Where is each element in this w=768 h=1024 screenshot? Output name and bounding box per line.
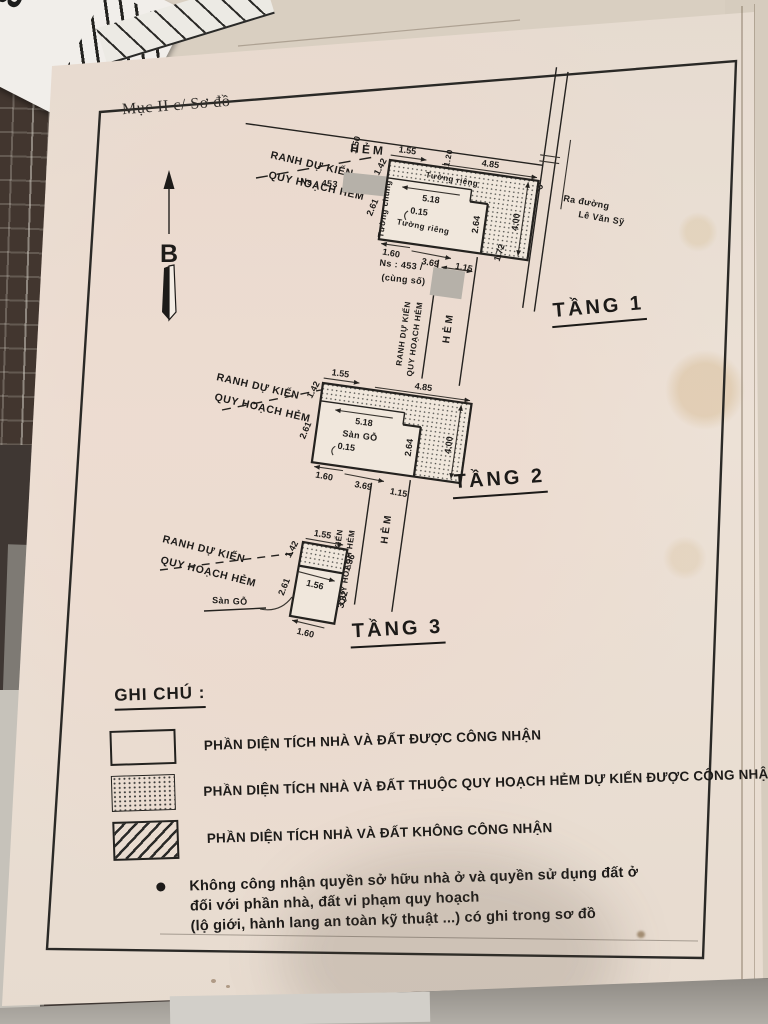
- f2-dim-485: 4.85: [414, 381, 433, 393]
- paper-under-bottom: [170, 992, 430, 1024]
- f2-alley-below-line-1: [354, 483, 371, 605]
- floor3-plan: RANH DỰ KIẾN QUY HOẠCH HẺM Sàn GỖ 1.55 1…: [159, 523, 360, 645]
- floor3-title: TẦNG 3: [349, 616, 446, 649]
- legend-title: GHI CHÚ :: [114, 683, 206, 711]
- floor1-plan: RANH DỰ KIẾN QUY HOẠCH HẺM 1.50 HẺM Ns :…: [214, 26, 626, 397]
- f2-dim-261: 2.61: [297, 420, 313, 440]
- f2-dim-369: 3.69: [354, 479, 373, 492]
- f3-dim-142: 1.42: [283, 539, 300, 559]
- f2-alley-below-line-2: [392, 480, 411, 612]
- f1-dim-142: 1.42: [372, 157, 389, 177]
- legend-label: PHẦN DIỆN TÍCH NHÀ VÀ ĐẤT KHÔNG CÔNG NHẬ…: [207, 820, 553, 846]
- f1-house-number-2b: (cùng số): [381, 272, 426, 287]
- f3-dim-160: 1.60: [296, 626, 315, 640]
- f2-dim-115: 1.15: [389, 486, 408, 499]
- f1-redaction-box-2: [430, 267, 466, 299]
- f3-dim-155: 1.55: [313, 528, 332, 541]
- f1-alley-label-below: HẺM: [439, 311, 456, 344]
- legend-swatch-dotted: [111, 774, 176, 812]
- f1-dim-155: 1.55: [398, 144, 417, 156]
- behind-paper-edge-line: [238, 20, 520, 46]
- f1-street-label-1: Ra đường: [563, 193, 611, 211]
- f3-dim-261: 2.61: [276, 577, 292, 597]
- legend-row-recognized: PHẦN DIỆN TÍCH NHÀ VÀ ĐẤT ĐƯỢC CÔNG NHẬN: [109, 711, 750, 766]
- legend-row-planned-alley: PHẦN DIỆN TÍCH NHÀ VÀ ĐẤT THUỘC QUY HOẠC…: [111, 756, 752, 812]
- legend-swatch-hatched: [112, 820, 179, 861]
- photo-of-survey-document: 453 B: [0, 0, 768, 1024]
- f1-house-number-2a: Ns : 453 /: [379, 258, 423, 273]
- f1-dim-369: 3.69: [421, 256, 440, 269]
- f2-dim-155: 1.55: [331, 367, 350, 379]
- f2-alley-label-below: HẺM: [377, 512, 394, 545]
- f1-dim-261: 2.61: [364, 197, 380, 217]
- f1-street-label-2: Lê Văn Sỹ: [578, 209, 626, 227]
- f3-wood-floor-label: Sàn GỖ: [212, 594, 248, 607]
- f2-dim-160: 1.60: [315, 469, 334, 482]
- f1-dim-485: 4.85: [481, 158, 500, 170]
- legend-label: PHẦN DIỆN TÍCH NHÀ VÀ ĐẤT THUỘC QUY HOẠC…: [203, 765, 768, 798]
- north-arrow: B: [160, 170, 178, 320]
- legend-swatch-plain: [109, 729, 176, 766]
- north-label: B: [160, 240, 178, 268]
- legend-label: PHẦN DIỆN TÍCH NHÀ VÀ ĐẤT ĐƯỢC CÔNG NHẬN: [204, 727, 542, 753]
- bullet-icon: [156, 882, 165, 891]
